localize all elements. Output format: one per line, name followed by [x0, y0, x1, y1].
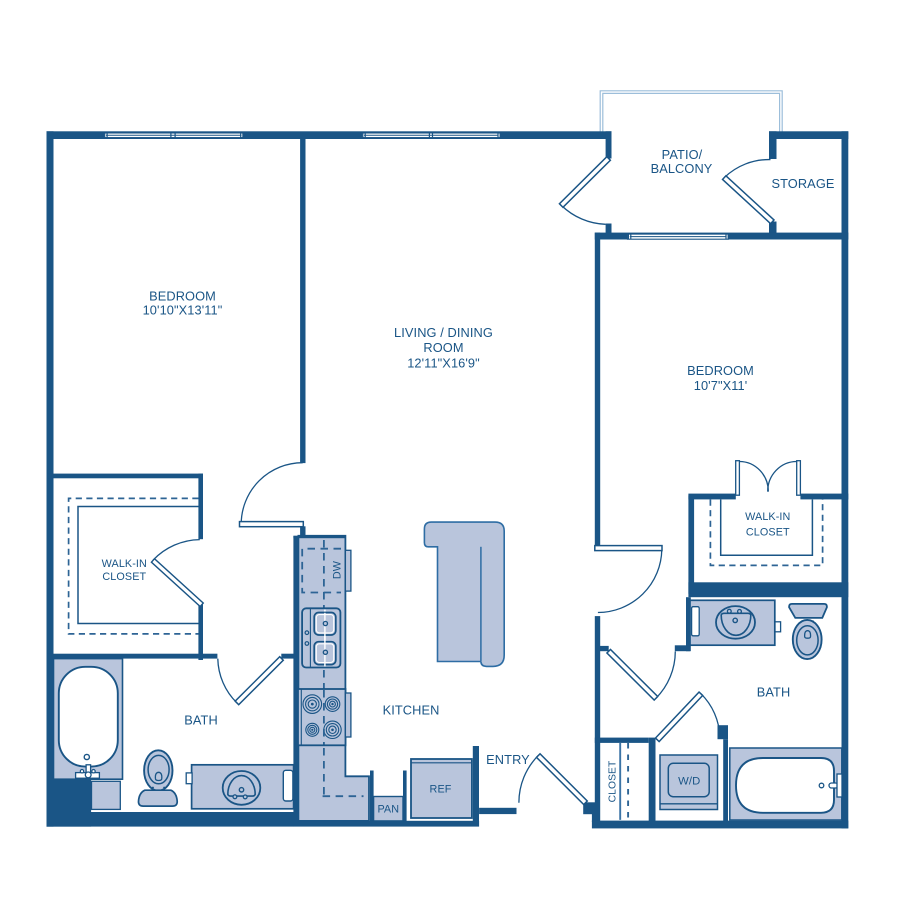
svg-text:WALK-IN: WALK-IN	[102, 558, 147, 570]
svg-text:BATH: BATH	[184, 713, 218, 728]
svg-text:REF: REF	[430, 784, 452, 796]
svg-text:DW: DW	[332, 560, 344, 579]
svg-text:BALCONY: BALCONY	[651, 161, 713, 176]
svg-text:BEDROOM: BEDROOM	[687, 363, 754, 378]
svg-text:CLOSET: CLOSET	[102, 571, 146, 583]
svg-text:KITCHEN: KITCHEN	[383, 703, 440, 718]
svg-text:ENTRY: ENTRY	[486, 752, 530, 767]
svg-text:LIVING / DINING: LIVING / DINING	[394, 325, 493, 340]
svg-text:WALK-IN: WALK-IN	[745, 511, 790, 523]
svg-text:PAN: PAN	[377, 803, 399, 815]
svg-text:ROOM: ROOM	[423, 340, 463, 355]
svg-text:10'10"X13'11": 10'10"X13'11"	[143, 303, 223, 318]
svg-text:CLOSET: CLOSET	[607, 760, 618, 802]
svg-text:BATH: BATH	[757, 685, 791, 700]
svg-text:W/D: W/D	[678, 775, 700, 787]
svg-text:CLOSET: CLOSET	[746, 526, 790, 538]
svg-text:12'11"X16'9": 12'11"X16'9"	[407, 356, 480, 371]
svg-text:PATIO/: PATIO/	[662, 147, 703, 162]
svg-text:STORAGE: STORAGE	[771, 176, 834, 191]
svg-text:BEDROOM: BEDROOM	[149, 289, 216, 304]
svg-text:10'7"X11': 10'7"X11'	[694, 378, 748, 393]
